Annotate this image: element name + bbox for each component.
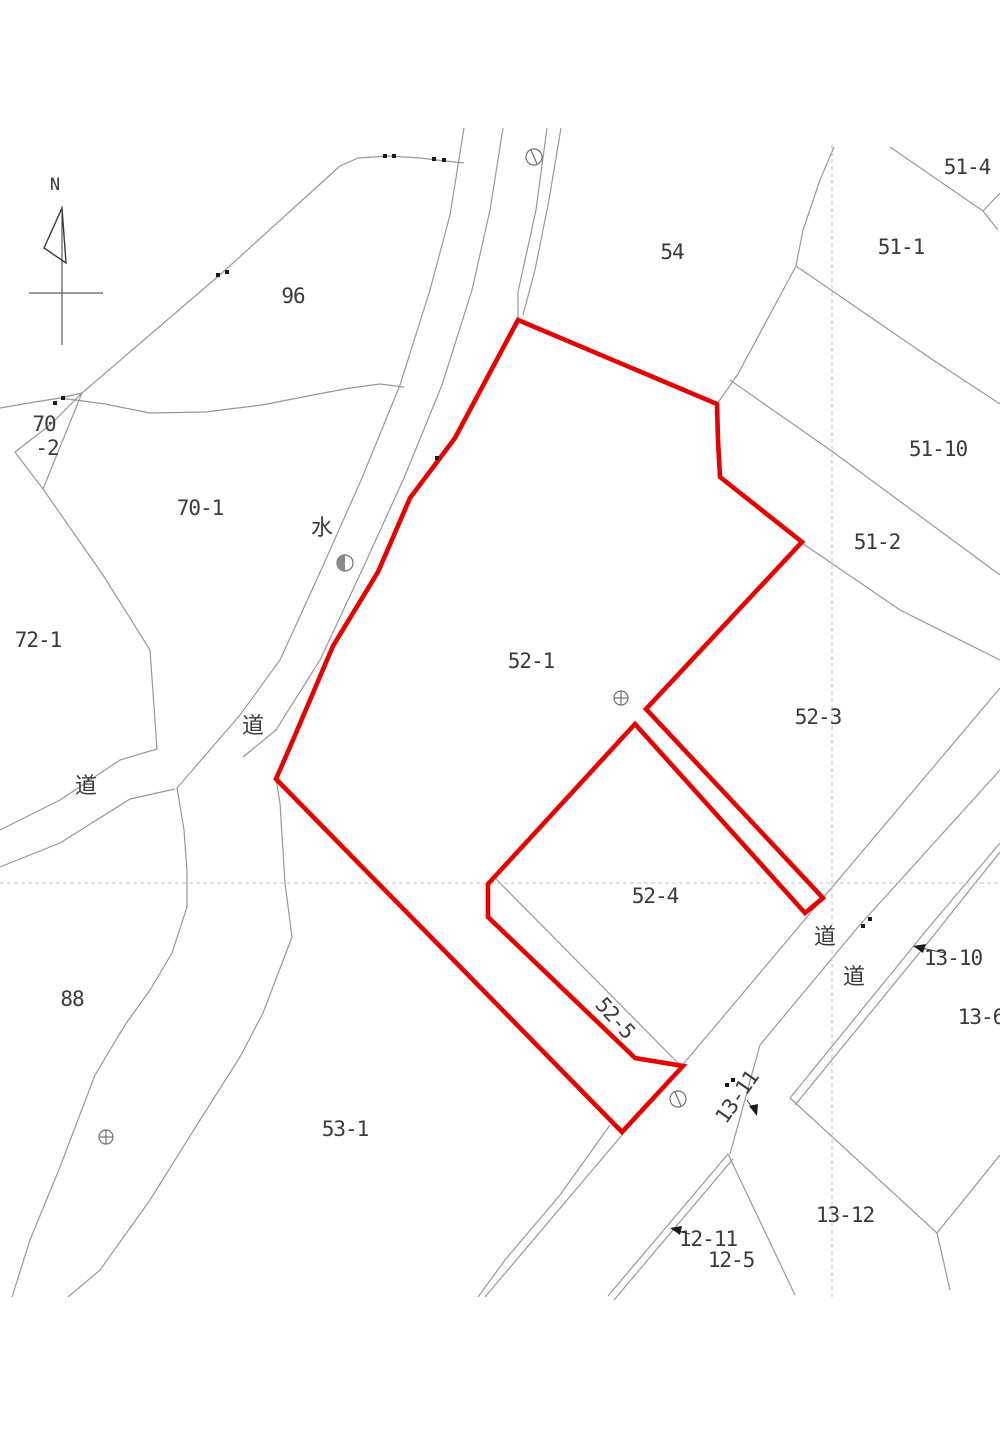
boundary-line [796,266,1000,404]
boundary-line [796,147,834,266]
circle-slash-marker [670,1091,686,1107]
parcel-label-13-11: 13-11 [710,1066,763,1128]
parcel-label-70-2-line1: 70 [32,412,56,436]
parcel-label-54: 54 [660,240,684,264]
survey-point-dots [53,154,872,1087]
survey-point-dot [383,154,387,158]
boundary-line [82,166,340,393]
road-label-se1: 道 [814,925,836,950]
parcel-label-13-6: 13-6 [958,1005,1000,1029]
parcel-label-72-1: 72-1 [15,628,62,652]
road-edge-line [243,128,503,757]
survey-point-dot [216,273,220,277]
road-edge-line [485,688,1000,1297]
parcel-boundary-lines [0,128,1000,1300]
compass-pennant [44,208,66,263]
parcel-label-88: 88 [60,987,84,1011]
parcel-label-70-2-line2: -2 [35,436,58,460]
parcel-label-51-10: 51-10 [909,437,968,461]
survey-point-dot [432,157,436,161]
parcel-label-12-5: 12-5 [708,1248,755,1272]
parcel-label-51-4: 51-4 [944,155,991,179]
road-edge-line [68,128,547,1297]
crosshair-circle-marker [614,691,628,705]
survey-point-dot [725,1083,729,1087]
parcel-label-13-10: 13-10 [924,946,983,970]
survey-point-dot [442,158,446,162]
road-edge-line [12,128,464,1297]
water-label: 水 [311,516,333,541]
survey-point-dot [861,924,865,928]
survey-point-dot [435,456,439,460]
compass-n-label: N [50,175,60,195]
survey-point-dot [225,270,229,274]
compass: N [29,175,103,345]
highlight-outline [276,320,823,1132]
parcel-labels: 96 70 -2 70-1 水 72-1 54 51-4 51-1 51-10 … [15,155,1000,1272]
road-edge-line [795,852,1000,1105]
survey-grid-lines [0,145,1000,1297]
map-canvas: N 96 70 -2 70-1 水 72-1 54 51-4 51-1 51-1… [0,0,1000,1444]
cadastral-map: N 96 70 -2 70-1 水 72-1 54 51-4 51-1 51-1… [0,0,1000,1444]
parcel-label-51-2: 51-2 [854,530,901,554]
survey-point-dot [868,917,872,921]
boundary-line [937,1233,950,1290]
road-edge-line [608,1154,728,1296]
boundary-line [43,489,157,749]
survey-point-dot [53,401,57,405]
parcel-label-96: 96 [281,284,305,308]
parcel-label-52-5: 52-5 [590,993,639,1044]
boundary-line [717,266,796,404]
road-label-left: 道 [75,774,97,799]
circle-halffill-marker [337,555,353,571]
survey-markers [99,149,686,1144]
parcel-label-70-1: 70-1 [177,496,224,520]
road-label-se2: 道 [843,965,865,990]
parcel-label-52-1: 52-1 [508,649,555,673]
road-label-center: 道 [242,714,264,739]
parcel-label-13-12: 13-12 [816,1203,874,1227]
road-edge-line [0,789,175,867]
parcel-label-51-1: 51-1 [878,235,925,259]
parcel-label-52-4: 52-4 [632,884,679,908]
road-edge-line [728,1154,795,1295]
crosshair-circle-marker [99,1130,113,1144]
survey-point-dot [61,396,65,400]
boundary-line [983,211,998,230]
parcel-label-53-1: 53-1 [322,1117,369,1141]
boundary-line [60,384,404,413]
parcel-label-52-3: 52-3 [795,705,842,729]
survey-point-dot [392,154,396,158]
arrow-13-11 [747,1100,758,1116]
road-edge-line [478,1125,610,1297]
circle-slash-marker [526,149,542,165]
